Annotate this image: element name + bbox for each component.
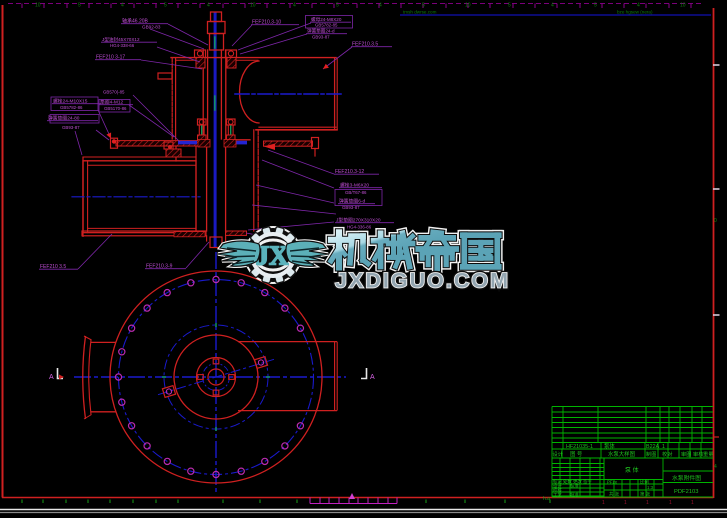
svg-text:GB5782-86: GB5782-86	[60, 105, 83, 110]
svg-text:1: 1	[662, 444, 665, 450]
svg-text:HG4-336-86: HG4-336-86	[347, 225, 372, 230]
svg-text:第 张: 第 张	[640, 491, 651, 498]
svg-text:GB570(-85: GB570(-85	[103, 90, 125, 95]
svg-text:4: 4	[293, 3, 296, 9]
svg-text:1: 1	[691, 500, 694, 506]
svg-text:图 号: 图 号	[570, 450, 583, 458]
svg-text:4: 4	[207, 3, 210, 9]
svg-text:共 张: 共 张	[609, 491, 620, 498]
svg-text:4: 4	[121, 3, 124, 9]
svg-text:10: 10	[250, 3, 256, 9]
svg-text:GB5170-86: GB5170-86	[104, 106, 127, 111]
svg-text:0: 0	[714, 218, 717, 224]
svg-text:HG4-338-66: HG4-338-66	[110, 43, 135, 48]
svg-text:A: A	[370, 374, 375, 381]
svg-text:10: 10	[35, 3, 41, 9]
svg-text:PFzx: PFzx	[607, 480, 618, 485]
svg-text:1: 1	[669, 500, 672, 506]
svg-text:GB/T67-86: GB/T67-86	[345, 190, 367, 195]
svg-text:5: 5	[78, 3, 81, 9]
svg-text:HF21035-1: HF21035-1	[566, 444, 593, 450]
svg-text:10: 10	[680, 3, 686, 9]
svg-text:GB92-83: GB92-83	[142, 25, 161, 30]
svg-text:h.a: h.a	[543, 496, 550, 502]
svg-text:校对: 校对	[662, 450, 672, 458]
svg-text:审图: 审图	[681, 450, 691, 458]
svg-text:水泵大样图: 水泵大样图	[608, 450, 635, 458]
svg-text:重量: 重量	[703, 450, 713, 458]
svg-text:设计: 设计	[553, 450, 563, 458]
svg-text:审核: 审核	[693, 450, 703, 458]
svg-text:5: 5	[336, 3, 339, 9]
svg-text:GB93-87: GB93-87	[62, 125, 80, 130]
svg-text:10: 10	[465, 3, 471, 9]
svg-text:1: 1	[602, 500, 605, 506]
svg-text:GB5782-85: GB5782-85	[315, 23, 338, 28]
svg-text:1:3: 1:3	[647, 485, 654, 490]
svg-text:批准: 批准	[570, 492, 579, 499]
svg-text:标准: 标准	[570, 483, 579, 490]
svg-text:bze hgsew (nera): bze hgsew (nera)	[617, 10, 653, 15]
svg-text:4: 4	[379, 3, 382, 9]
svg-text:tmsh dwrse.com: tmsh dwrse.com	[403, 10, 437, 15]
svg-text:5: 5	[422, 3, 425, 9]
svg-text:GB93-87: GB93-87	[312, 35, 330, 40]
svg-text:1: 1	[646, 500, 649, 506]
svg-text:4: 4	[637, 3, 640, 9]
svg-text:1: 1	[624, 500, 627, 506]
svg-text:JXDIGUO.COM: JXDIGUO.COM	[335, 269, 508, 293]
svg-text:5: 5	[594, 3, 597, 9]
svg-text:A: A	[49, 374, 54, 381]
svg-text:5: 5	[508, 3, 511, 9]
svg-text:工艺: 工艺	[553, 493, 562, 498]
svg-text:4: 4	[551, 3, 554, 9]
svg-text:JX: JX	[256, 241, 290, 271]
svg-text:制图: 制图	[646, 450, 656, 458]
svg-text:GB93-87: GB93-87	[342, 205, 360, 210]
svg-text:水泵附件图: 水泵附件图	[672, 474, 701, 482]
svg-text:5: 5	[164, 3, 167, 9]
svg-text:4: 4	[714, 464, 717, 470]
svg-text:泵 体: 泵 体	[625, 466, 639, 474]
svg-text:PDF2103: PDF2103	[674, 489, 699, 495]
svg-text:泵体: 泵体	[604, 442, 615, 450]
